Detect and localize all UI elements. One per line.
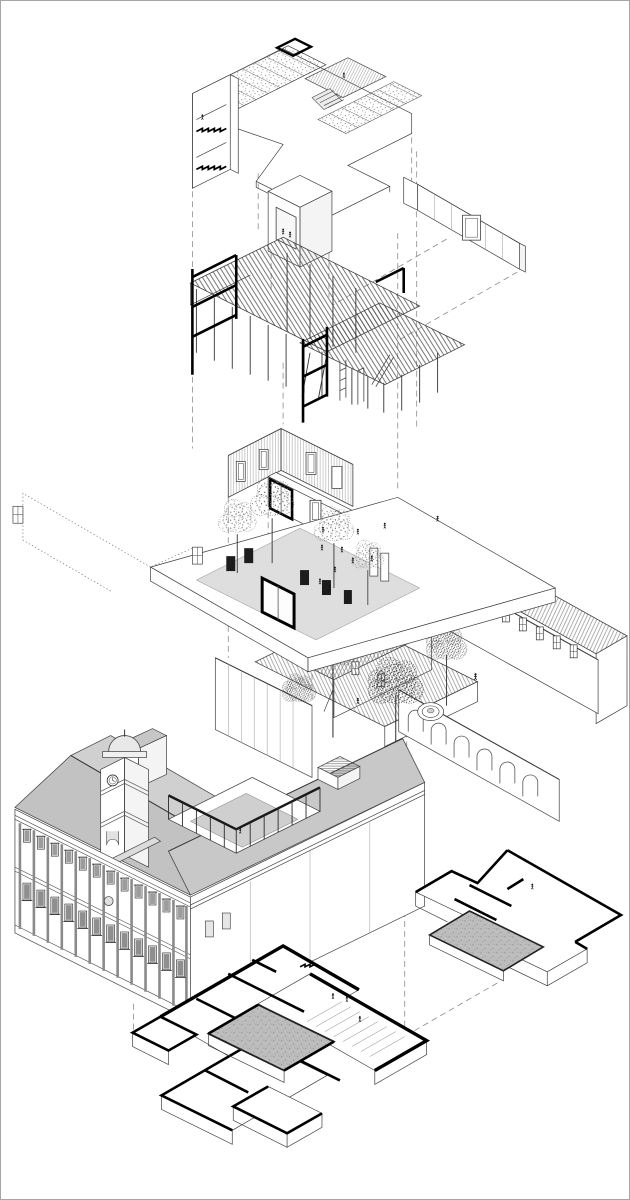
basement-annex [416, 850, 621, 986]
person [474, 673, 477, 680]
stair-core [192, 75, 238, 189]
exploded-axonometric-drawing [1, 1, 629, 1199]
bar-window [310, 500, 321, 522]
wall-fragment [404, 177, 526, 272]
drawing-sheet [0, 0, 630, 1200]
structural-pergola [190, 237, 464, 422]
fragment-window [463, 215, 481, 240]
facade-medallion [104, 897, 113, 906]
fountain [418, 703, 444, 721]
historic-building [15, 729, 425, 1021]
